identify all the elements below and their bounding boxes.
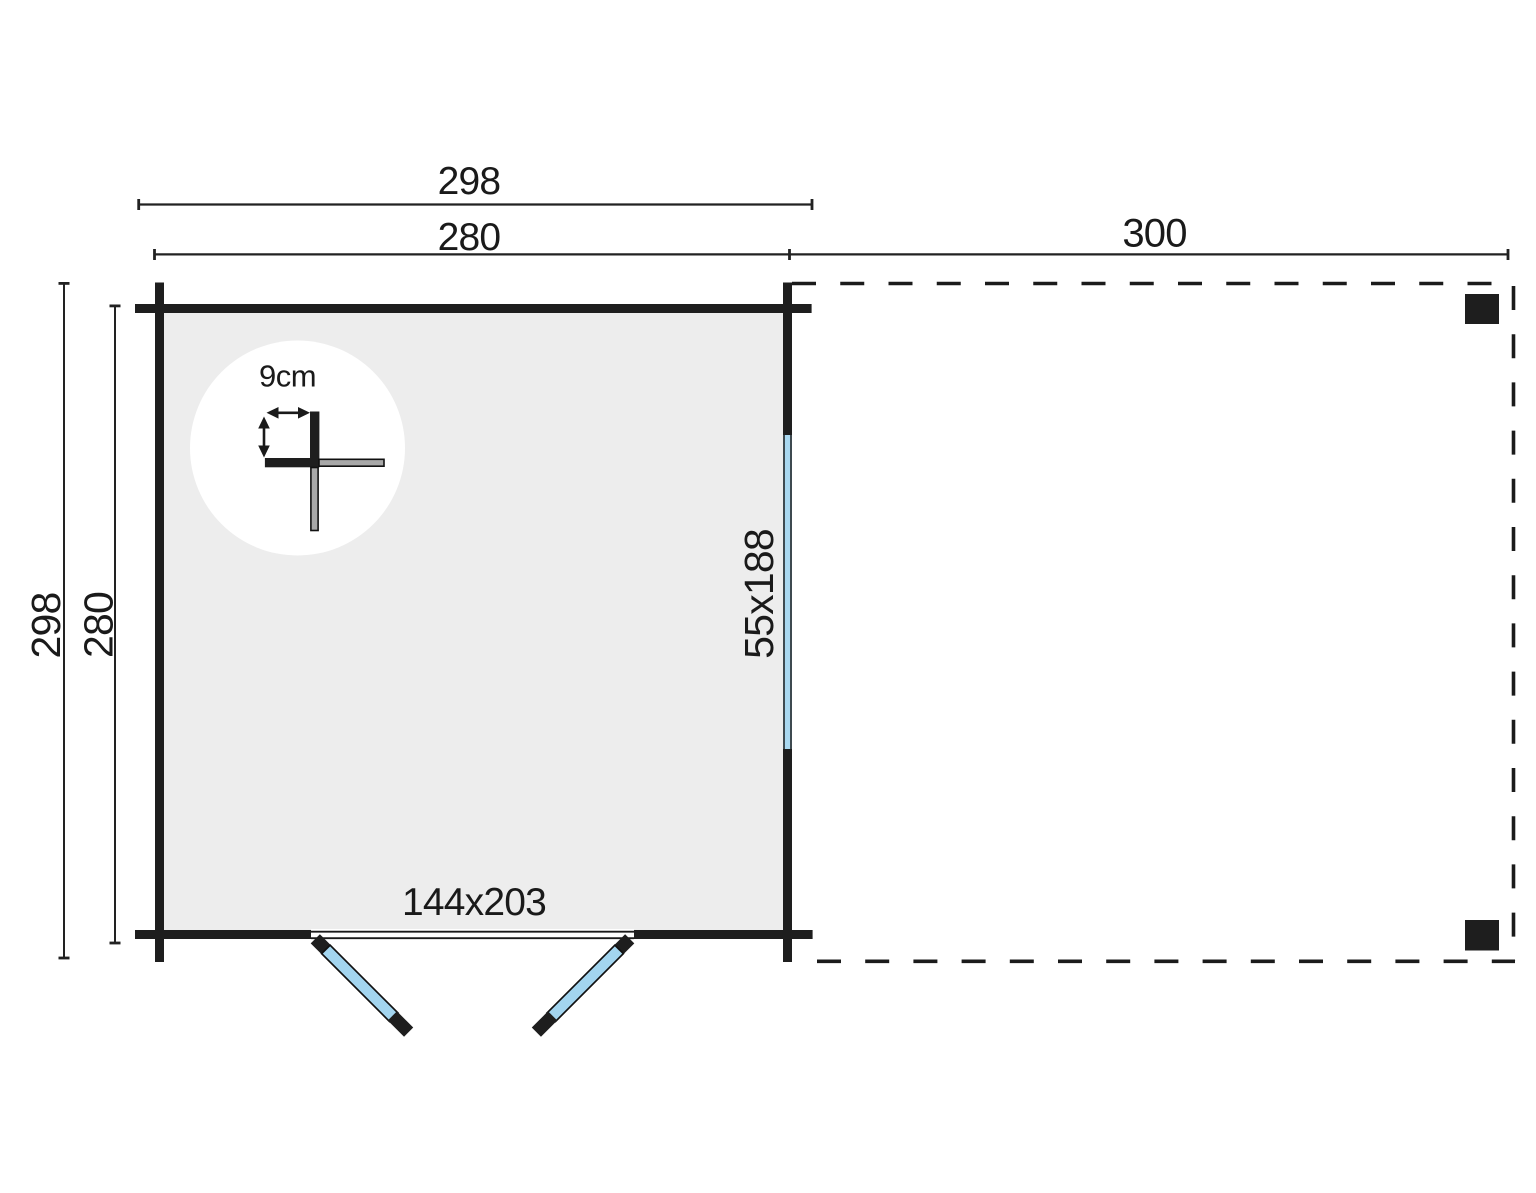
svg-text:55x188: 55x188: [736, 529, 782, 659]
svg-text:280: 280: [76, 592, 122, 658]
svg-text:298: 298: [23, 592, 69, 658]
svg-text:9cm: 9cm: [259, 359, 316, 394]
svg-text:300: 300: [1122, 212, 1186, 256]
svg-text:144x203: 144x203: [402, 881, 546, 924]
svg-text:298: 298: [438, 160, 501, 203]
svg-text:280: 280: [438, 216, 501, 259]
